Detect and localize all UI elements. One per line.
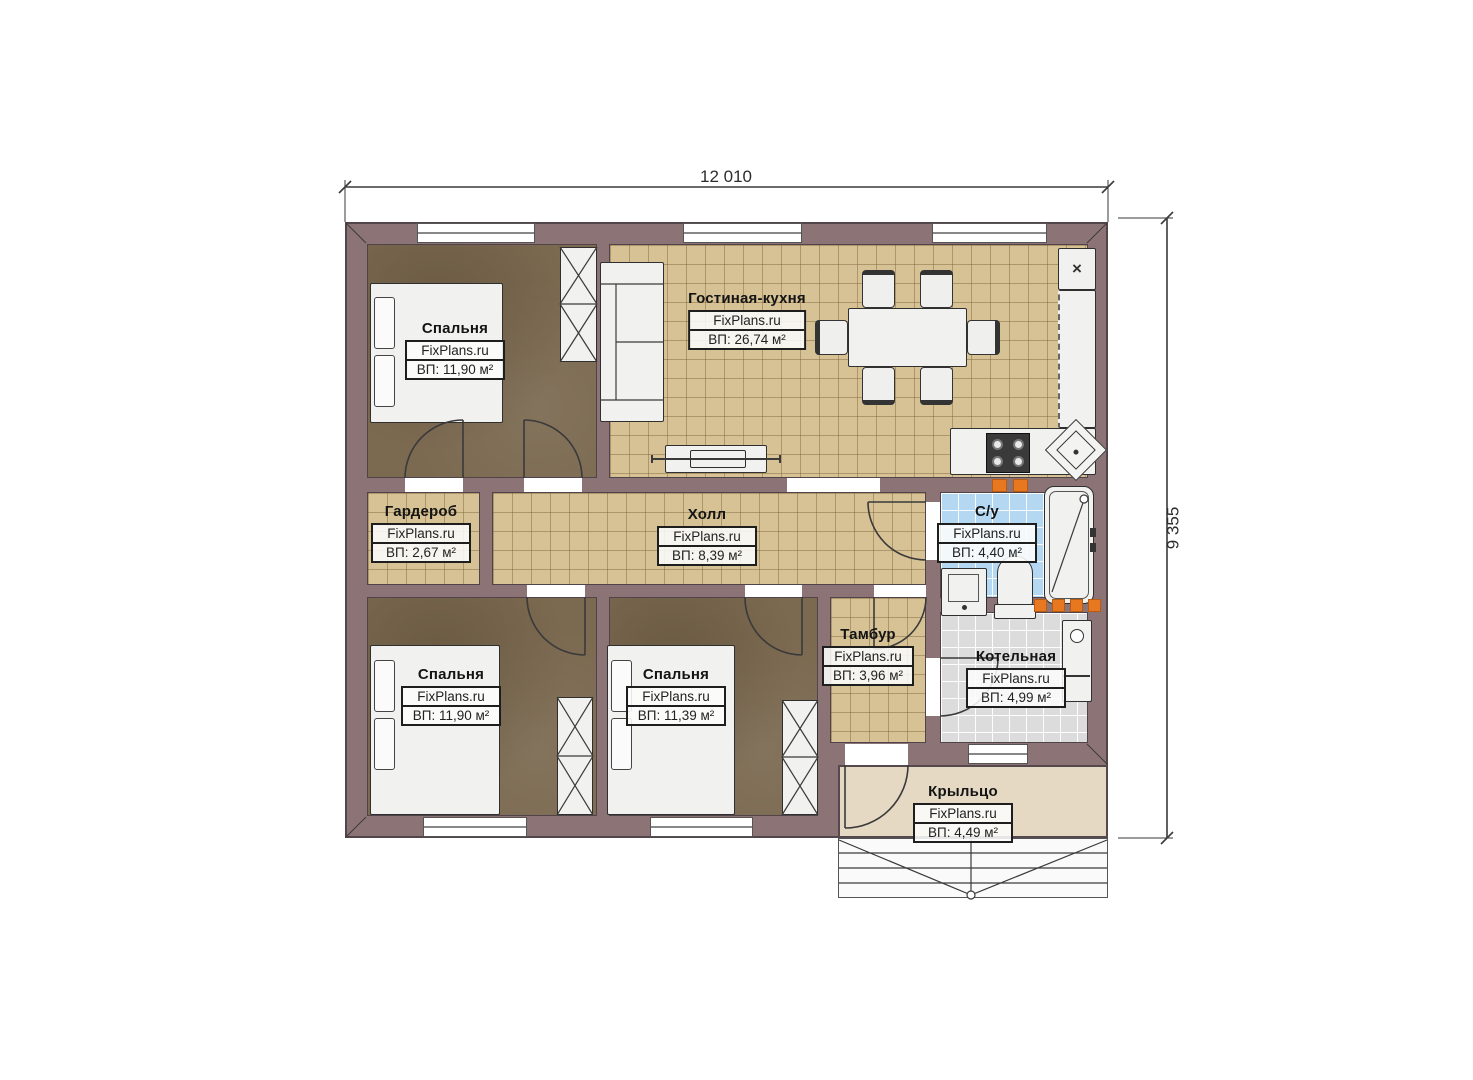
watermark: FixPlans.ru — [690, 312, 804, 329]
chair — [862, 367, 895, 405]
chair — [920, 270, 953, 308]
porch-steps — [838, 838, 1108, 898]
room-title: Холл — [657, 506, 757, 523]
watermark: FixPlans.ru — [968, 670, 1064, 687]
watermark: FixPlans.ru — [373, 525, 469, 542]
dining-table — [848, 308, 967, 367]
radiator-marker — [1088, 599, 1101, 612]
room-area: ВП: 26,74 м² — [690, 329, 804, 348]
door-opening — [874, 585, 926, 597]
room-label-bedroom-2: Спальня FixPlans.ru ВП: 11,90 м² — [401, 666, 501, 726]
watermark: FixPlans.ru — [403, 688, 499, 705]
radiator-marker — [1013, 479, 1028, 492]
room-label-living-kitchen: Гостиная-кухня FixPlans.ru ВП: 26,74 м² — [688, 290, 806, 350]
room-info-box: FixPlans.ru ВП: 11,90 м² — [405, 340, 505, 380]
bathtub — [1044, 486, 1094, 604]
radiator-marker — [1052, 599, 1065, 612]
room-area: ВП: 2,67 м² — [373, 542, 469, 561]
door-opening — [527, 585, 585, 597]
sofa — [600, 262, 664, 422]
kitchen-counter-right — [1058, 290, 1096, 428]
window — [968, 744, 1028, 764]
bathtub-tap — [1090, 543, 1096, 552]
window — [423, 817, 527, 837]
room-info-box: FixPlans.ru ВП: 2,67 м² — [371, 523, 471, 563]
room-info-box: FixPlans.ru ВП: 26,74 м² — [688, 310, 806, 350]
door-opening — [926, 658, 940, 716]
watermark: FixPlans.ru — [407, 342, 503, 359]
chair — [920, 367, 953, 405]
room-title: Гостиная-кухня — [688, 290, 806, 307]
room-area: ВП: 11,90 м² — [407, 359, 503, 378]
pillow — [374, 718, 395, 770]
room-area: ВП: 4,99 м² — [968, 687, 1064, 706]
room-info-box: FixPlans.ru ВП: 4,49 м² — [913, 803, 1013, 843]
window — [417, 223, 535, 243]
room-label-hall: Холл FixPlans.ru ВП: 8,39 м² — [657, 506, 757, 566]
fridge-x-mark: × — [1072, 259, 1082, 279]
window — [683, 223, 802, 243]
room-area: ВП: 8,39 м² — [659, 545, 755, 564]
room-title: С/у — [937, 503, 1037, 520]
radiator-marker — [992, 479, 1007, 492]
room-title: Котельная — [966, 648, 1066, 665]
room-info-box: FixPlans.ru ВП: 3,96 м² — [822, 646, 914, 686]
watermark: FixPlans.ru — [628, 688, 724, 705]
fridge: × — [1058, 248, 1096, 290]
door-opening — [405, 478, 463, 492]
wardrobe-cabinet-3 — [782, 700, 818, 815]
bathtub-tap — [1090, 528, 1096, 537]
room-area: ВП: 11,39 м² — [628, 705, 724, 724]
room-info-box: FixPlans.ru ВП: 8,39 м² — [657, 526, 757, 566]
tv — [690, 450, 746, 468]
room-label-bedroom-3: Спальня FixPlans.ru ВП: 11,39 м² — [626, 666, 726, 726]
stove — [986, 433, 1030, 473]
watermark: FixPlans.ru — [659, 528, 755, 545]
chair — [815, 320, 848, 355]
room-info-box: FixPlans.ru ВП: 4,99 м² — [966, 668, 1066, 708]
window — [932, 223, 1047, 243]
wardrobe-cabinet-1 — [560, 247, 597, 362]
room-title: Тамбур — [822, 626, 914, 643]
room-label-porch: Крыльцо FixPlans.ru ВП: 4,49 м² — [913, 783, 1013, 843]
room-title: Крыльцо — [913, 783, 1013, 800]
room-area: ВП: 3,96 м² — [824, 665, 912, 684]
room-title: Спальня — [405, 320, 505, 337]
wardrobe-cabinet-2 — [557, 697, 593, 815]
room-label-bathroom: С/у FixPlans.ru ВП: 4,40 м² — [937, 503, 1037, 563]
door-opening — [524, 478, 582, 492]
room-label-vestibule: Тамбур FixPlans.ru ВП: 3,96 м² — [822, 626, 914, 686]
chair — [862, 270, 895, 308]
radiator-marker — [1034, 599, 1047, 612]
pillow — [374, 297, 395, 349]
floor-plan-canvas: 12 010 9 355 × — [0, 0, 1473, 1080]
boiler — [1062, 620, 1092, 702]
passage-opening — [787, 478, 880, 492]
watermark: FixPlans.ru — [824, 648, 912, 665]
room-title: Спальня — [401, 666, 501, 683]
toilet-tank — [994, 604, 1036, 619]
dimension-width-label: 12 010 — [700, 167, 752, 187]
room-area: ВП: 11,90 м² — [403, 705, 499, 724]
room-info-box: FixPlans.ru ВП: 11,90 м² — [401, 686, 501, 726]
room-label-wardrobe: Гардероб FixPlans.ru ВП: 2,67 м² — [371, 503, 471, 563]
entrance-door-opening — [845, 744, 908, 765]
watermark: FixPlans.ru — [915, 805, 1011, 822]
door-opening — [745, 585, 802, 597]
watermark: FixPlans.ru — [939, 525, 1035, 542]
chair — [967, 320, 1000, 355]
room-info-box: FixPlans.ru ВП: 11,39 м² — [626, 686, 726, 726]
room-info-box: FixPlans.ru ВП: 4,40 м² — [937, 523, 1037, 563]
pillow — [374, 355, 395, 407]
room-area: ВП: 4,49 м² — [915, 822, 1011, 841]
dimension-height-label: 9 355 — [1163, 507, 1183, 550]
window — [650, 817, 753, 837]
pillow — [374, 660, 395, 712]
bathroom-sink — [941, 568, 987, 616]
room-label-bedroom-1: Спальня FixPlans.ru ВП: 11,90 м² — [405, 320, 505, 380]
room-label-boiler-room: Котельная FixPlans.ru ВП: 4,99 м² — [966, 648, 1066, 708]
toilet — [997, 556, 1033, 608]
radiator-marker — [1070, 599, 1083, 612]
room-area: ВП: 4,40 м² — [939, 542, 1035, 561]
room-title: Гардероб — [371, 503, 471, 520]
room-title: Спальня — [626, 666, 726, 683]
